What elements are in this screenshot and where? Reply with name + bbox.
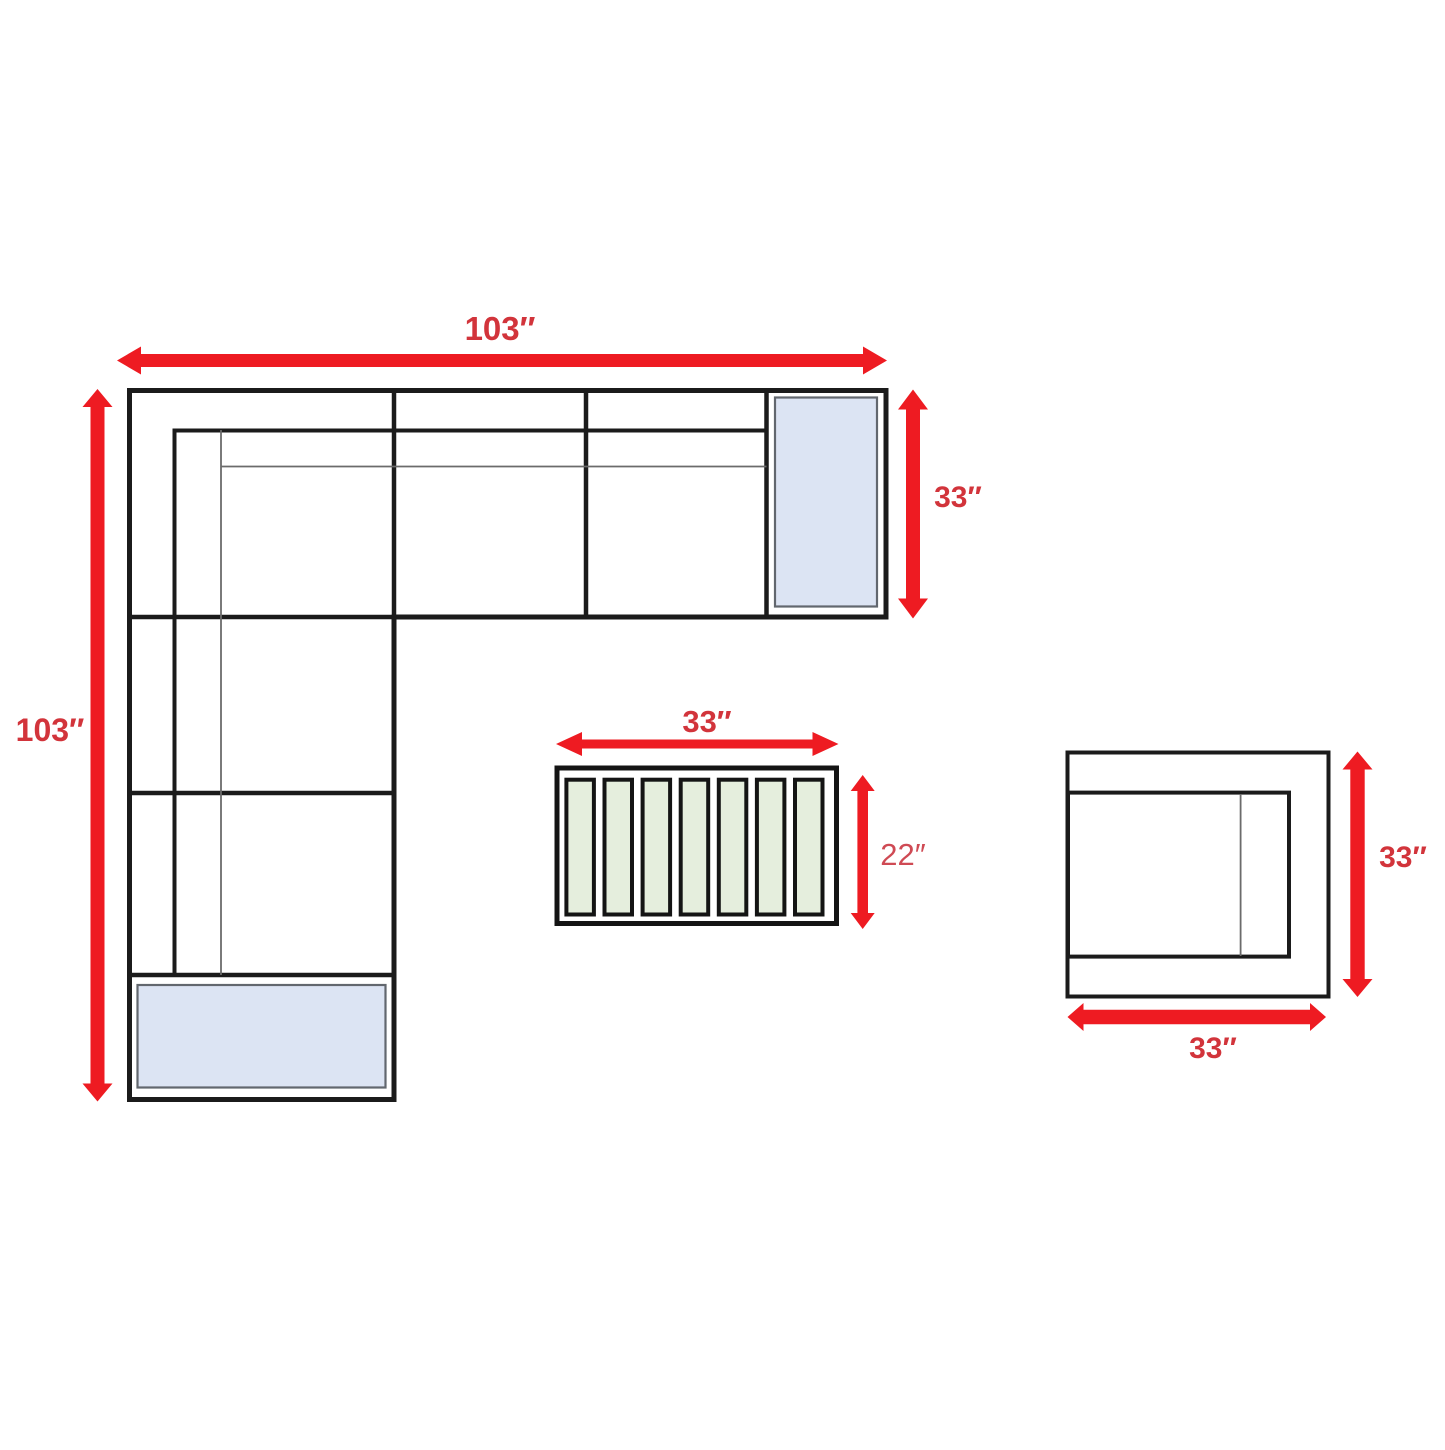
svg-text:33″: 33″ (1189, 1032, 1237, 1065)
svg-text:103″: 103″ (16, 712, 85, 748)
svg-text:22″: 22″ (880, 837, 925, 872)
svg-text:103″: 103″ (465, 310, 536, 347)
svg-text:33″: 33″ (682, 704, 731, 739)
svg-text:33″: 33″ (934, 481, 982, 514)
svg-text:33″: 33″ (1379, 841, 1427, 874)
